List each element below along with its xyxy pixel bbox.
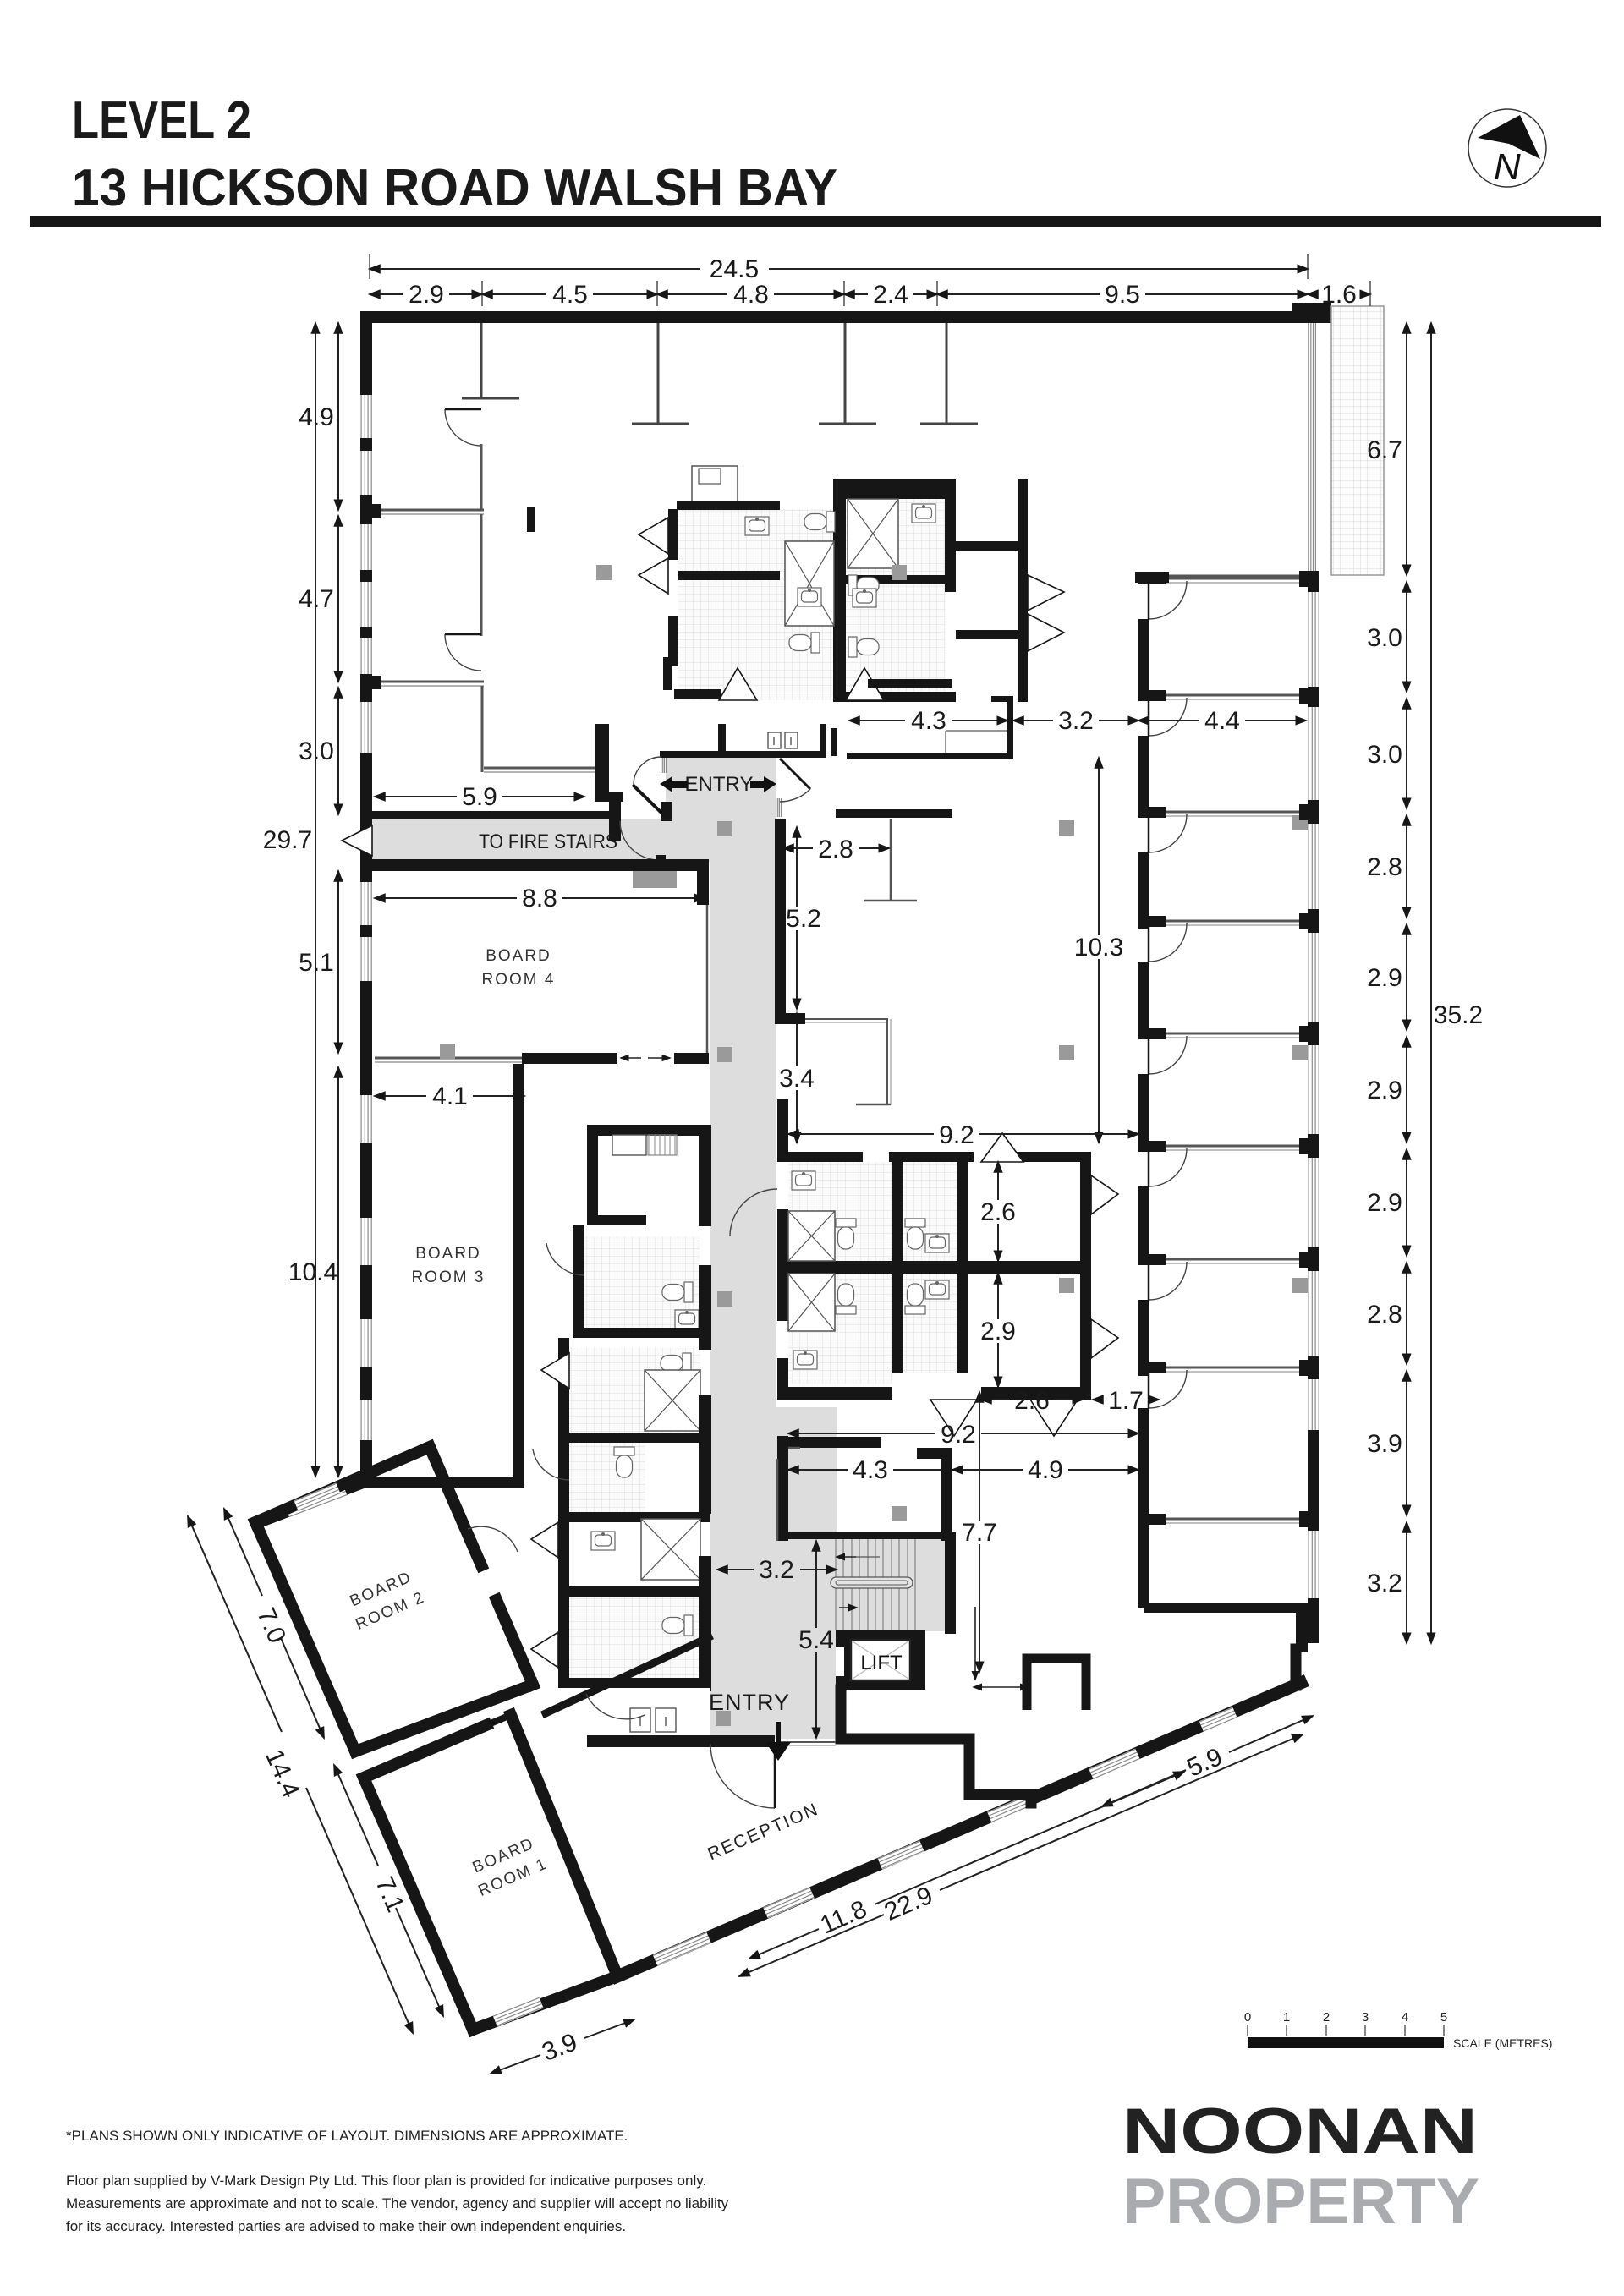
- svg-text:*PLANS SHOWN ONLY INDICATIVE O: *PLANS SHOWN ONLY INDICATIVE OF LAYOUT. …: [66, 2128, 628, 2144]
- svg-text:4.1: 4.1: [432, 1082, 468, 1110]
- svg-text:3.9: 3.9: [1367, 1430, 1402, 1458]
- svg-text:Floor plan supplied by V-Mark: Floor plan supplied by V-Mark Design Pty…: [66, 2173, 706, 2189]
- svg-text:3.2: 3.2: [1058, 707, 1094, 735]
- svg-text:2.6: 2.6: [1014, 1387, 1050, 1415]
- svg-text:29.7: 29.7: [263, 826, 312, 854]
- svg-text:35.2: 35.2: [1434, 1001, 1483, 1029]
- svg-text:5.2: 5.2: [786, 905, 821, 933]
- svg-text:9.2: 9.2: [941, 1421, 976, 1449]
- svg-text:4.9: 4.9: [1028, 1456, 1063, 1484]
- svg-text:N: N: [1494, 146, 1521, 188]
- svg-text:10.3: 10.3: [1074, 934, 1123, 962]
- svg-text:5.4: 5.4: [798, 1626, 834, 1654]
- svg-text:2.6: 2.6: [980, 1198, 1016, 1226]
- svg-text:ROOM 4: ROOM 4: [482, 971, 556, 989]
- svg-text:ENTRY: ENTRY: [709, 1690, 790, 1715]
- svg-text:13 HICKSON ROAD WALSH BAY: 13 HICKSON ROAD WALSH BAY: [72, 159, 837, 217]
- svg-text:4.3: 4.3: [911, 707, 946, 735]
- svg-text:3.0: 3.0: [1367, 624, 1402, 652]
- svg-text:2.9: 2.9: [1367, 1189, 1402, 1217]
- svg-text:TO FIRE STAIRS: TO FIRE STAIRS: [479, 830, 617, 853]
- svg-text:Measurements are approximate a: Measurements are approximate and not to …: [66, 2195, 729, 2211]
- svg-text:2: 2: [1323, 2010, 1330, 2025]
- svg-text:3.2: 3.2: [759, 1556, 794, 1584]
- svg-text:1.6: 1.6: [1321, 281, 1357, 309]
- svg-text:3.4: 3.4: [779, 1065, 815, 1093]
- svg-text:BOARD: BOARD: [415, 1245, 481, 1263]
- svg-text:8.8: 8.8: [522, 885, 557, 912]
- svg-text:2.9: 2.9: [1367, 964, 1402, 992]
- svg-text:LEVEL 2: LEVEL 2: [72, 91, 251, 150]
- svg-text:4: 4: [1402, 2010, 1408, 2025]
- svg-text:24.5: 24.5: [710, 255, 759, 283]
- svg-text:9.5: 9.5: [1105, 281, 1140, 309]
- svg-text:4.3: 4.3: [853, 1456, 888, 1484]
- svg-text:ROOM 3: ROOM 3: [412, 1269, 486, 1286]
- svg-text:2.8: 2.8: [1367, 853, 1402, 881]
- svg-text:5.1: 5.1: [299, 949, 334, 977]
- svg-text:2.8: 2.8: [1367, 1301, 1402, 1329]
- svg-text:LIFT: LIFT: [860, 1652, 903, 1674]
- svg-text:0: 0: [1244, 2010, 1251, 2025]
- svg-text:for its accuracy. Interested p: for its accuracy. Interested parties are…: [66, 2218, 626, 2234]
- svg-text:3: 3: [1362, 2010, 1369, 2025]
- svg-text:10.4: 10.4: [288, 1258, 337, 1286]
- svg-text:2.8: 2.8: [818, 836, 853, 863]
- svg-text:SCALE (METRES): SCALE (METRES): [1453, 2036, 1552, 2050]
- svg-text:6.7: 6.7: [1367, 436, 1402, 464]
- svg-text:4.8: 4.8: [733, 281, 769, 309]
- svg-text:3.2: 3.2: [1367, 1570, 1402, 1597]
- svg-text:5.9: 5.9: [462, 783, 497, 811]
- svg-text:1: 1: [1283, 2010, 1290, 2025]
- svg-text:NOONAN: NOONAN: [1122, 2096, 1478, 2167]
- svg-text:7.7: 7.7: [962, 1519, 997, 1547]
- svg-text:5: 5: [1440, 2010, 1447, 2025]
- svg-text:ENTRY: ENTRY: [685, 773, 754, 796]
- svg-text:1.7: 1.7: [1108, 1387, 1144, 1415]
- svg-text:4.5: 4.5: [552, 281, 588, 309]
- svg-text:4.4: 4.4: [1204, 707, 1240, 735]
- svg-text:2.4: 2.4: [873, 281, 908, 309]
- svg-text:9.2: 9.2: [939, 1121, 974, 1149]
- svg-text:BOARD: BOARD: [486, 947, 551, 965]
- svg-text:2.9: 2.9: [1367, 1077, 1402, 1104]
- svg-text:2.9: 2.9: [980, 1318, 1016, 1345]
- svg-text:2.9: 2.9: [409, 281, 444, 309]
- svg-text:3.0: 3.0: [1367, 741, 1402, 769]
- svg-text:PROPERTY: PROPERTY: [1122, 2166, 1479, 2238]
